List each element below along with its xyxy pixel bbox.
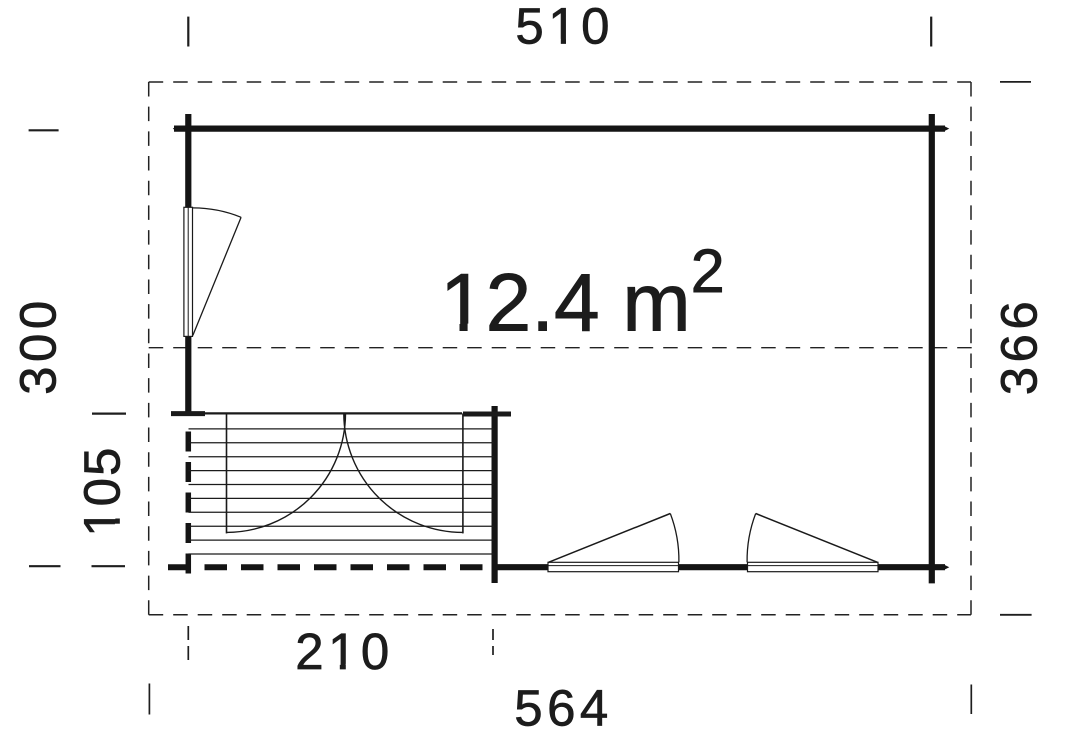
svg-text:105: 105: [74, 446, 131, 537]
svg-text:366: 366: [990, 297, 1047, 396]
svg-text:300: 300: [10, 296, 67, 395]
svg-text:510: 510: [515, 0, 614, 55]
svg-text:564: 564: [514, 680, 613, 737]
svg-text:210: 210: [295, 623, 394, 680]
